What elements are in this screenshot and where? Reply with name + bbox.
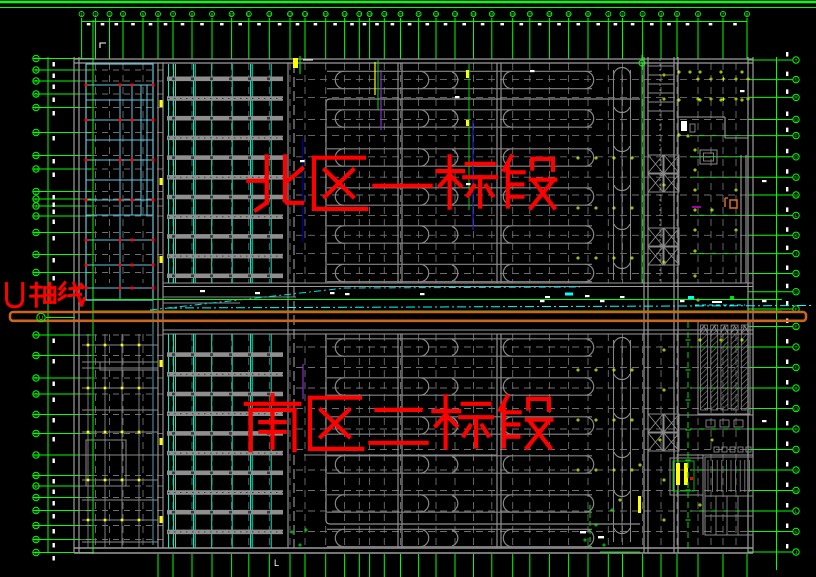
svg-text:J: J [795, 251, 797, 256]
svg-text:E: E [794, 324, 797, 329]
svg-text:H: H [794, 271, 797, 276]
svg-text:23: 23 [453, 12, 458, 17]
svg-text:P: P [794, 133, 797, 138]
svg-text:N: N [34, 153, 37, 158]
svg-text:T: T [795, 345, 798, 350]
svg-text:T: T [35, 333, 38, 338]
svg-text:H: H [34, 523, 37, 528]
svg-text:14: 14 [303, 12, 308, 17]
svg-text:19: 19 [382, 12, 387, 17]
svg-text:S: S [794, 365, 797, 370]
svg-text:N: N [34, 453, 37, 458]
svg-text:G: G [34, 230, 38, 235]
svg-text:L: L [274, 558, 279, 568]
svg-text:M: M [794, 193, 798, 198]
svg-text:21: 21 [416, 12, 421, 17]
svg-text:M: M [34, 167, 38, 172]
svg-text:O: O [794, 155, 798, 160]
svg-text:E: E [34, 270, 37, 275]
svg-text:28: 28 [547, 12, 552, 17]
svg-text:27: 27 [527, 12, 532, 17]
svg-text:Q: Q [794, 117, 798, 122]
svg-text:T: T [35, 56, 38, 61]
svg-text:17: 17 [357, 12, 362, 17]
svg-text:25: 25 [489, 12, 494, 17]
svg-text:M: M [34, 473, 38, 478]
svg-text:Q: Q [794, 406, 798, 411]
svg-text:N: N [794, 175, 797, 180]
svg-text:11: 11 [247, 12, 252, 17]
svg-text:O: O [34, 431, 38, 436]
svg-text:30: 30 [586, 12, 591, 17]
svg-text:U: U [39, 316, 43, 322]
svg-text:J: J [35, 204, 37, 209]
svg-text:29: 29 [566, 12, 571, 17]
svg-text:26: 26 [510, 12, 515, 17]
svg-text:G: G [34, 537, 38, 542]
svg-text:S: S [34, 353, 37, 358]
svg-text:L: L [35, 189, 38, 194]
svg-text:G: G [794, 290, 798, 295]
svg-text:12: 12 [267, 12, 272, 17]
svg-text:10: 10 [229, 12, 234, 17]
svg-text:L: L [795, 509, 798, 514]
svg-text:L: L [35, 484, 38, 489]
svg-text:N: N [794, 468, 797, 473]
svg-text:13: 13 [288, 12, 293, 17]
svg-text:F: F [35, 550, 38, 555]
svg-text:P: P [794, 427, 797, 432]
svg-text:22: 22 [434, 12, 439, 17]
svg-text:O: O [794, 447, 798, 452]
svg-text:Q: Q [34, 392, 38, 397]
svg-text:J: J [795, 550, 797, 555]
svg-text:T: T [795, 58, 798, 63]
svg-text:24: 24 [471, 12, 476, 17]
svg-text:Q: Q [34, 92, 38, 97]
svg-text:20: 20 [398, 12, 403, 17]
svg-text:F: F [35, 252, 38, 257]
svg-text:H: H [34, 214, 37, 219]
svg-text:L: L [795, 213, 798, 218]
svg-text:S: S [794, 77, 797, 82]
svg-text:J: J [35, 508, 37, 513]
svg-text:O: O [34, 130, 38, 135]
svg-text:M: M [794, 488, 798, 493]
svg-text:S: S [34, 68, 37, 73]
svg-text:P: P [34, 105, 37, 110]
svg-text:16: 16 [342, 12, 347, 17]
svg-text:15: 15 [323, 12, 328, 17]
svg-text:P: P [34, 412, 37, 417]
svg-text:18: 18 [367, 12, 372, 17]
